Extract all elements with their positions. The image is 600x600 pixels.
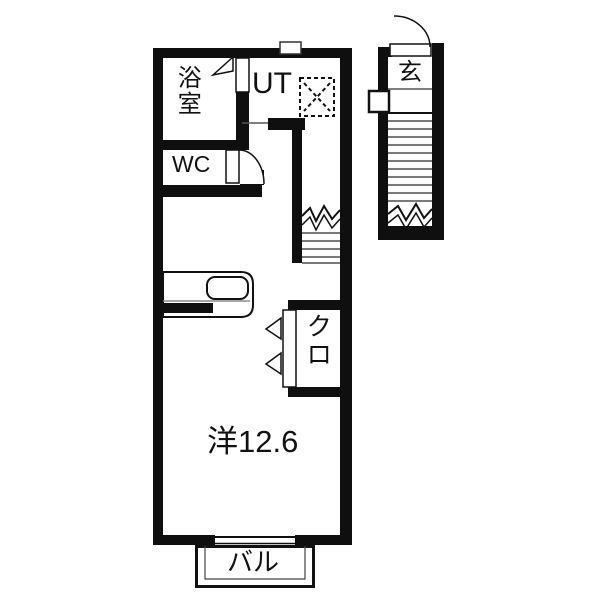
living-room-label: 洋12.6 — [207, 426, 298, 459]
washing-machine-pan-icon — [300, 78, 334, 116]
closet-door-swing-icon2 — [266, 353, 281, 374]
entry-door-arc-icon — [394, 16, 430, 47]
inner-stair-treads — [302, 233, 340, 263]
entry-stair-treads — [388, 113, 432, 201]
kitchen-counter — [163, 272, 253, 317]
counter-wall-stub — [163, 303, 213, 313]
entrance-label: 玄 — [398, 60, 422, 85]
inner-stairs — [292, 118, 340, 263]
entry-wall-left — [378, 47, 388, 240]
bathroom-door-icon — [236, 58, 249, 92]
balcony-label: バル — [227, 549, 279, 576]
ut-wall-left — [236, 118, 242, 130]
bathroom-door-swing-icon — [213, 57, 233, 75]
meter-box-icon — [369, 91, 389, 112]
toilet-label: WC — [172, 152, 210, 176]
wc-bottom-wall — [153, 185, 262, 197]
bathroom-label: 浴室 — [177, 66, 202, 119]
window-balcony-icon — [215, 535, 295, 545]
closet-label: クロ — [306, 314, 333, 369]
wall-top — [153, 48, 352, 58]
entry-door-icon — [390, 44, 431, 56]
closet-bottom-wall — [288, 387, 352, 397]
closet-top-wall — [288, 300, 352, 310]
floorplan-canvas — [0, 0, 600, 600]
entry-wall-bottom — [378, 226, 444, 240]
closet-door-icon — [283, 310, 296, 387]
entry-wall-right — [432, 43, 444, 240]
entrance-stairs — [369, 16, 444, 240]
closet-door-swing-icon — [266, 318, 281, 339]
sink-icon — [207, 277, 248, 299]
window-top-icon — [280, 42, 301, 54]
wall-left — [153, 48, 163, 545]
wall-right — [340, 48, 352, 545]
stair-shaft-wall — [292, 118, 302, 263]
bathroom-bottom-wall — [153, 140, 248, 150]
wc-door-icon — [226, 150, 239, 183]
floorplan: 浴室 UT WC 玄 クロ 洋12.6 バル — [0, 0, 600, 600]
utility-label: UT — [252, 68, 292, 100]
